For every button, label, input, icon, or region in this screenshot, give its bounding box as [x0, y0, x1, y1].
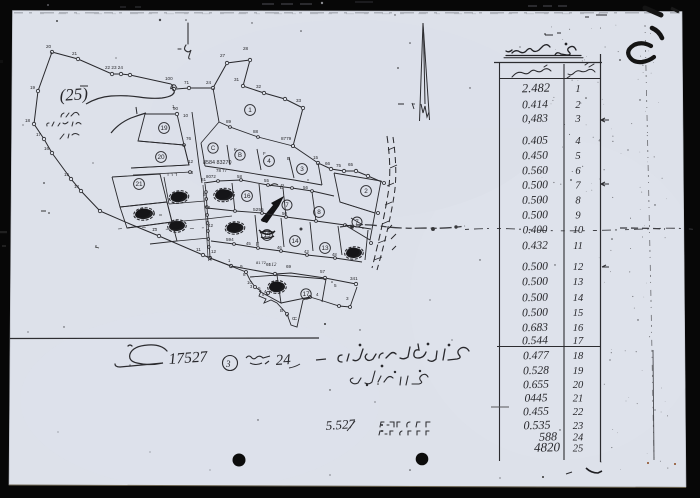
svg-text:B: B	[238, 153, 242, 159]
svg-text:69: 69	[286, 264, 292, 269]
svg-text:8779: 8779	[281, 136, 292, 141]
svg-text:16: 16	[573, 323, 584, 334]
svg-text:17: 17	[302, 291, 310, 298]
svg-text:32: 32	[256, 84, 262, 89]
svg-text:0.405: 0.405	[522, 135, 548, 148]
svg-text:ד ר ד: ד ר ד	[166, 172, 177, 178]
svg-text:88: 88	[253, 129, 259, 134]
svg-text:81 72: 81 72	[256, 260, 267, 265]
svg-text:B: B	[280, 308, 283, 313]
svg-text:50: 50	[282, 211, 287, 216]
svg-text:0.400: 0.400	[522, 224, 548, 237]
svg-text:7: 7	[575, 181, 581, 192]
svg-text:1: 1	[575, 84, 580, 95]
svg-text:18: 18	[573, 351, 584, 362]
svg-text:33: 33	[296, 98, 302, 103]
svg-text:0.500: 0.500	[522, 261, 548, 274]
svg-text:0.450: 0.450	[522, 150, 548, 163]
svg-text:3: 3	[203, 192, 206, 197]
svg-text:0.414: 0.414	[522, 99, 548, 112]
svg-text:0.528: 0.528	[523, 365, 549, 378]
svg-text:341: 341	[350, 276, 358, 281]
svg-text:46: 46	[277, 245, 282, 250]
svg-text:71: 71	[184, 80, 190, 85]
svg-text:A: A	[286, 313, 289, 318]
svg-text:76: 76	[186, 136, 192, 141]
svg-text:21: 21	[573, 394, 584, 405]
svg-text:0.477: 0.477	[523, 350, 550, 363]
svg-text:16: 16	[243, 193, 251, 200]
svg-text:58: 58	[237, 174, 242, 179]
svg-text:0.500: 0.500	[522, 209, 548, 222]
svg-text:20: 20	[573, 380, 584, 391]
svg-text:K: K	[234, 147, 237, 152]
svg-text:8: 8	[575, 196, 581, 207]
svg-text:594: 594	[226, 237, 234, 242]
svg-text:E: E	[287, 156, 290, 161]
svg-text:15: 15	[313, 155, 319, 160]
svg-text:3: 3	[300, 166, 304, 173]
svg-text:23: 23	[573, 421, 584, 432]
svg-text:5: 5	[575, 151, 580, 162]
svg-text:14: 14	[74, 184, 80, 189]
svg-text:24: 24	[573, 433, 584, 444]
svg-text:2: 2	[575, 100, 581, 111]
svg-text:15: 15	[573, 308, 584, 319]
svg-text:21: 21	[72, 51, 78, 56]
svg-text:3: 3	[574, 114, 580, 125]
svg-text:55: 55	[264, 178, 269, 183]
svg-text:3: 3	[346, 296, 349, 301]
svg-text:42: 42	[208, 223, 214, 228]
svg-text:0.655: 0.655	[523, 379, 549, 392]
svg-text:15: 15	[64, 172, 70, 177]
svg-text:75: 75	[336, 163, 342, 168]
svg-text:10: 10	[183, 113, 189, 118]
svg-text:17: 17	[573, 336, 584, 347]
svg-text:100: 100	[165, 76, 173, 81]
svg-text:8: 8	[243, 272, 246, 277]
svg-text:0.455: 0.455	[523, 406, 549, 419]
svg-text:0.500: 0.500	[522, 292, 548, 305]
svg-text:20: 20	[46, 44, 52, 49]
svg-text:0,483: 0,483	[522, 113, 548, 126]
svg-text:0.683: 0.683	[522, 322, 548, 335]
svg-text:8584 83270: 8584 83270	[203, 160, 231, 166]
svg-text:8: 8	[317, 209, 321, 216]
svg-text:65: 65	[348, 162, 354, 167]
svg-text:78 77: 78 77	[216, 168, 228, 173]
svg-text:9: 9	[240, 264, 243, 269]
svg-text:24: 24	[275, 352, 292, 369]
svg-text:90: 90	[173, 106, 179, 111]
svg-text:13: 13	[152, 227, 158, 232]
svg-text:=12: =12	[268, 263, 277, 268]
svg-text:4: 4	[316, 292, 319, 297]
svg-text:17527: 17527	[168, 348, 209, 368]
svg-text:31: 31	[234, 77, 240, 82]
svg-text:2.482: 2.482	[522, 81, 550, 96]
svg-text:F: F	[263, 151, 266, 156]
svg-text:22: 22	[573, 407, 584, 418]
svg-text:43: 43	[205, 205, 211, 210]
svg-text:13: 13	[573, 277, 584, 288]
svg-text:28: 28	[243, 46, 249, 51]
svg-text:56: 56	[303, 185, 308, 190]
svg-text:0.500: 0.500	[522, 276, 548, 289]
svg-text:C: C	[294, 316, 297, 321]
svg-text:11: 11	[573, 241, 583, 252]
svg-text:20: 20	[157, 154, 165, 161]
svg-text:89: 89	[226, 119, 232, 124]
svg-text:48: 48	[332, 252, 337, 257]
svg-text:4: 4	[575, 136, 581, 147]
svg-text:9: 9	[575, 211, 581, 222]
svg-text:0.432: 0.432	[522, 240, 548, 253]
svg-text:4: 4	[267, 158, 271, 165]
svg-text:11: 11	[196, 247, 201, 252]
svg-text:12: 12	[211, 249, 217, 254]
svg-text:14: 14	[291, 238, 299, 245]
svg-text:18: 18	[25, 118, 31, 123]
svg-text:27: 27	[220, 53, 226, 58]
svg-text:19: 19	[30, 85, 36, 90]
svg-text:0.560: 0.560	[522, 165, 548, 178]
svg-text:0.500: 0.500	[522, 194, 548, 207]
svg-text:14: 14	[573, 293, 584, 304]
svg-text:0445: 0445	[524, 392, 548, 405]
svg-text:10: 10	[573, 225, 584, 236]
svg-text:8072: 8072	[206, 174, 216, 179]
svg-text:57: 57	[320, 269, 326, 274]
svg-text:2: 2	[364, 188, 368, 195]
svg-text:19: 19	[160, 125, 168, 132]
svg-text:12: 12	[573, 262, 584, 273]
svg-text:3: 3	[225, 359, 231, 369]
svg-text:5 4: 5 4	[262, 292, 268, 297]
svg-text:19: 19	[573, 366, 584, 377]
svg-text:16: 16	[44, 146, 50, 151]
svg-text:66: 66	[325, 161, 331, 166]
svg-text:24: 24	[206, 80, 212, 85]
svg-text:5: 5	[334, 283, 337, 288]
svg-text:5: 5	[258, 286, 261, 291]
svg-text:5.527: 5.527	[325, 416, 356, 433]
svg-text:45: 45	[246, 241, 251, 246]
svg-text:0.500: 0.500	[522, 307, 548, 320]
svg-text:0.500: 0.500	[522, 179, 548, 192]
svg-text:0.544: 0.544	[522, 335, 548, 348]
svg-text:22 23 24: 22 23 24	[105, 65, 123, 70]
svg-text:4820: 4820	[534, 439, 561, 455]
svg-text:(25): (25)	[59, 84, 89, 105]
svg-text:1: 1	[248, 107, 252, 114]
svg-text:6: 6	[575, 166, 581, 177]
svg-text:25: 25	[573, 444, 584, 455]
svg-text:13: 13	[321, 245, 329, 252]
svg-text:C: C	[211, 146, 216, 152]
svg-text:17: 17	[36, 132, 42, 137]
svg-text:21: 21	[135, 181, 143, 188]
svg-text:43: 43	[304, 249, 309, 254]
